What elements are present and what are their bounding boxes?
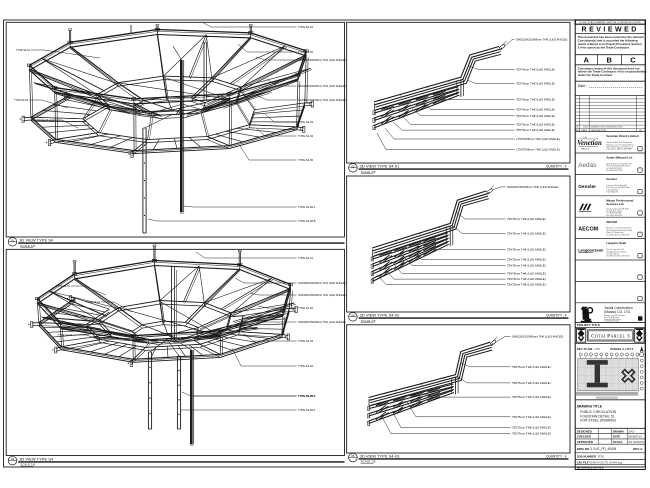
svg-text:CAD FILE: CAD FILE (577, 460, 589, 464)
svg-text:DATE: DATE (613, 435, 621, 439)
svg-text:Aedas (Macau) Ltd.: Aedas (Macau) Ltd. (606, 156, 633, 160)
svg-text:QUANTITY : 4: QUANTITY : 4 (546, 454, 567, 458)
svg-text:75X75mm THK (L&O ANGLE): 75X75mm THK (L&O ANGLE) (507, 264, 546, 268)
svg-text:DESIGNED: DESIGNED (577, 429, 592, 433)
svg-text:TYPE S4-02: TYPE S4-02 (14, 99, 29, 102)
svg-text:Services Ltd.: Services Ltd. (606, 202, 624, 206)
svg-text:Rooms 805-806, Macau: Rooms 805-806, Macau (604, 319, 621, 321)
svg-text:75X75mm THK (L&O ANGLE): 75X75mm THK (L&O ANGLE) (516, 123, 555, 127)
svg-text:TYPE S4-03: TYPE S4-03 (58, 334, 73, 337)
svg-text:SHS150X150X8mm THK (L&O ANGLE): SHS150X150X8mm THK (L&O ANGLE) (298, 281, 346, 285)
svg-text:under the Trade Contract.: under the Trade Contract. (578, 73, 613, 77)
svg-text:04: 04 (351, 313, 355, 317)
svg-text:ISSUED FOR CONSTRUCTION: ISSUED FOR CONSTRUCTION (591, 127, 623, 129)
svg-text:-: - (599, 435, 600, 439)
svg-text:TYPE S4-05 B: TYPE S4-05 B (298, 394, 316, 398)
svg-text:75X75mm THK (L&O ANGLE): 75X75mm THK (L&O ANGLE) (512, 426, 551, 430)
svg-text:75X75mm THK (L&O ANGLE): 75X75mm THK (L&O ANGLE) (516, 67, 555, 71)
svg-text:DO NOT SCALE DRAWING. VERIFY A: DO NOT SCALE DRAWING. VERIFY ALL DIMENSI… (579, 21, 641, 24)
svg-text:75X75mm THK (L&O ANGLE): 75X75mm THK (L&O ANGLE) (507, 257, 546, 261)
svg-text:75X75mm THK (L&O ANGLE): 75X75mm THK (L&O ANGLE) (507, 282, 546, 286)
svg-text:L75X75X6mm THK (L&O ANGLE): L75X75X6mm THK (L&O ANGLE) (516, 137, 560, 141)
svg-text:3D VIEW TYPE S4-03: 3D VIEW TYPE S4-03 (360, 453, 400, 458)
svg-text:TYPE S4-03: TYPE S4-03 (34, 119, 49, 122)
svg-text:TYPE S4-02: TYPE S4-02 (298, 306, 313, 310)
svg-text:REVIEWED: REVIEWED (582, 27, 639, 34)
svg-text:TYPE S4-01: TYPE S4-01 (298, 256, 313, 260)
svg-text:75X75mm THK (L&O ANGLE): 75X75mm THK (L&O ANGLE) (512, 395, 551, 399)
svg-text:SCALE 1/8: SCALE 1/8 (20, 463, 35, 467)
svg-text:FOR STEEL DRAWING: FOR STEEL DRAWING (580, 419, 616, 423)
svg-text:TYPE S4-02: TYPE S4-02 (86, 301, 101, 304)
svg-text:3D VIEW TYPE S4-01: 3D VIEW TYPE S4-01 (360, 164, 400, 169)
svg-text:JOB NUMBER: JOB NUMBER (577, 454, 597, 458)
svg-text:SHS150X150X8mm THK (L&O ANGLE): SHS150X150X8mm THK (L&O ANGLE) (298, 84, 346, 88)
svg-text:02: 02 (11, 457, 15, 461)
svg-text:SHS150X150X8mm THK (L&O ANGLE): SHS150X150X8mm THK (L&O ANGLE) (298, 98, 346, 102)
svg-text:C: C (630, 56, 636, 65)
svg-text:01: 01 (11, 238, 15, 242)
svg-text:SCALE 1/8: SCALE 1/8 (361, 460, 376, 464)
svg-text:75X75mm THK (L&O ANGLE): 75X75mm THK (L&O ANGLE) (512, 365, 551, 369)
svg-text:04/SEP/15: 04/SEP/15 (628, 435, 642, 439)
svg-text:Fax: (853) 2871 5092: Fax: (853) 2871 5092 (606, 170, 622, 172)
svg-text:TYPE S4-01: TYPE S4-01 (16, 49, 31, 52)
svg-text:75X75mm THK (L&O ANGLE): 75X75mm THK (L&O ANGLE) (516, 98, 555, 102)
svg-text:F 415.836.4599: F 415.836.4599 (606, 192, 618, 194)
svg-text:3728: 3728 (597, 454, 604, 458)
svg-text:REV A: REV A (633, 447, 643, 451)
svg-text:3D VIEW TYPE S4: 3D VIEW TYPE S4 (19, 238, 54, 243)
svg-text:Venetian Orient Limited: Venetian Orient Limited (606, 134, 639, 138)
svg-text:DRAWING TITLE: DRAWING TITLE (577, 405, 602, 409)
svg-text:75X75mm THK (L&O ANGLE): 75X75mm THK (L&O ANGLE) (516, 108, 555, 112)
svg-text:1 : 1750: 1 : 1750 (591, 348, 600, 351)
svg-text:3D VIEW TYPE S4-02: 3D VIEW TYPE S4-02 (360, 313, 400, 318)
svg-text:TYPE S4-05 A: TYPE S4-05 A (298, 205, 316, 209)
svg-text:SCALE 1/8: SCALE 1/8 (361, 170, 376, 174)
svg-text:75X75mm THK (L&O ANGLE): 75X75mm THK (L&O ANGLE) (512, 415, 551, 419)
svg-text:KEY PLAN: KEY PLAN (577, 347, 592, 351)
svg-text:DRAWN: DRAWN (613, 429, 624, 433)
svg-text:REFERENCE ON FILE: REFERENCE ON FILE (577, 465, 604, 469)
svg-text:75X75mm THK (L&O ANGLE): 75X75mm THK (L&O ANGLE) (507, 277, 546, 281)
svg-text:Avenida Comercial de Macau: Avenida Comercial de Macau (604, 314, 625, 317)
svg-text:Date :: Date : (578, 84, 588, 88)
svg-text:SHS150X150X8mm THK (L&O ANGLE): SHS150X150X8mm THK (L&O ANGLE) (507, 185, 558, 189)
svg-text:CHECKED: CHECKED (577, 435, 591, 439)
svg-text:PROJECT TITLE: PROJECT TITLE (577, 323, 600, 327)
svg-text:Aedas: Aedas (578, 162, 596, 169)
svg-text:TYPE S4-05: TYPE S4-05 (298, 158, 313, 162)
svg-text:TYPE S4-05 A: TYPE S4-05 A (298, 408, 316, 412)
svg-text:75X75mm THK (L&O ANGLE): 75X75mm THK (L&O ANGLE) (512, 381, 551, 385)
svg-text:QUANTITY : 4: QUANTITY : 4 (546, 314, 567, 318)
svg-text:TYPE S4-01: TYPE S4-01 (56, 285, 71, 288)
svg-text:B: B (607, 56, 613, 65)
svg-text:Tel: (853) 2870 0328: Tel: (853) 2870 0328 (604, 321, 619, 323)
svg-text:SHS150X150X8mm THK (L&O ANGLE): SHS150X150X8mm THK (L&O ANGLE) (298, 320, 346, 324)
svg-text:-: - (599, 440, 600, 444)
svg-text:PARCEL 3, LOT 2: PARCEL 3, LOT 2 (610, 347, 633, 351)
svg-text:10/09: 10/09 (583, 127, 589, 129)
svg-text:75X75mm THK (L&O ANGLE): 75X75mm THK (L&O ANGLE) (507, 272, 546, 276)
svg-text:AS SHOWN: AS SHOWN (628, 440, 644, 444)
svg-text:75X75mm THK (L&O ANGLE): 75X75mm THK (L&O ANGLE) (507, 231, 546, 235)
svg-text:Venetian: Venetian (577, 140, 602, 147)
svg-text:SHS150X150X8mm THK (L&O ANGLE): SHS150X150X8mm THK (L&O ANGLE) (516, 38, 567, 42)
svg-text:A: A (577, 126, 579, 129)
svg-text:LangdonSeah: LangdonSeah (578, 249, 604, 253)
svg-text:75X75mm THK (L&O ANGLE): 75X75mm THK (L&O ANGLE) (507, 247, 546, 251)
svg-text:Langdon Seah: Langdon Seah (606, 241, 626, 245)
svg-text:TYPE S4-03: TYPE S4-03 (298, 120, 313, 124)
svg-text:SHS150X150X8mm THK (L&O ANGLE): SHS150X150X8mm THK (L&O ANGLE) (298, 293, 346, 297)
svg-text:TYPE S4-04: TYPE S4-04 (298, 134, 313, 138)
svg-text:SCALE 1/8: SCALE 1/8 (361, 319, 376, 323)
svg-text:75X75mm THK (L&O ANGLE): 75X75mm THK (L&O ANGLE) (516, 82, 555, 86)
svg-text:QUANTITY : 4: QUANTITY : 4 (546, 165, 567, 169)
svg-text:3D VIEW TYPE S4: 3D VIEW TYPE S4 (19, 456, 54, 461)
svg-text:SCALE: SCALE (613, 440, 623, 444)
svg-text:DAO: DAO (628, 429, 635, 433)
svg-text:A: A (584, 56, 590, 65)
svg-text:40493-PCM_PD_40494.dwg: 40493-PCM_PD_40494.dwg (589, 460, 623, 464)
svg-text:APPROVED: APPROVED (577, 440, 593, 444)
svg-text:Tel: 2893 1551 Fax: 2891 5272: Tel: 2893 1551 Fax: 2891 5272 (606, 234, 629, 236)
svg-text:5.4 for action by the Trade Co: 5.4 for action by the Trade Contractor. (578, 45, 630, 49)
svg-text:75X75mm THK (L&O ANGLE): 75X75mm THK (L&O ANGLE) (516, 128, 555, 132)
svg-text:75X75mm THK (L&O ANGLE): 75X75mm THK (L&O ANGLE) (516, 114, 555, 118)
svg-text:75X75mm THK (L&O ANGLE): 75X75mm THK (L&O ANGLE) (507, 217, 546, 221)
svg-text:05: 05 (351, 454, 355, 458)
svg-text:DWG NO: DWG NO (577, 447, 590, 451)
svg-text:75X75mm THK (L&O ANGLE): 75X75mm THK (L&O ANGLE) (512, 432, 551, 436)
svg-text:Tel: 2833 1710 Fax: 2833 1532: Tel: 2833 1710 Fax: 2833 1532 (606, 256, 629, 258)
svg-text:TYPE S4-01: TYPE S4-01 (298, 25, 313, 29)
svg-text:03: 03 (351, 164, 355, 168)
svg-text:AECOM: AECOM (578, 227, 599, 233)
svg-text:AECOM: AECOM (606, 220, 617, 224)
svg-text:-: - (599, 429, 600, 433)
svg-text:TYPE S4-05 B: TYPE S4-05 B (298, 219, 316, 223)
svg-text:TYPE S4-02: TYPE S4-02 (298, 50, 313, 54)
svg-text:SHS150X150X8mm THK (L&O ANGLE): SHS150X150X8mm THK (L&O ANGLE) (298, 58, 346, 62)
svg-text:Gensler: Gensler (606, 177, 618, 181)
svg-text:SCALE 1/8: SCALE 1/8 (20, 244, 35, 248)
svg-text:3-YUE_PD_40494: 3-YUE_PD_40494 (590, 447, 616, 451)
svg-text:(Macau) CO. LTD.: (Macau) CO. LTD. (604, 310, 631, 314)
svg-text:M A C A O: M A C A O (581, 147, 590, 150)
svg-text:Fax: (853) 2878 3397: Fax: (853) 2878 3397 (606, 215, 622, 217)
svg-text:TYPE S4-03: TYPE S4-03 (298, 339, 313, 343)
svg-text:TYPE S4-04: TYPE S4-04 (298, 364, 313, 368)
svg-text:L75X75X6mm THK (L&O ANGLE): L75X75X6mm THK (L&O ANGLE) (516, 148, 560, 152)
svg-text:Gensler: Gensler (578, 184, 596, 190)
svg-text:Taipa, Macau SAR Tel: 2882 88: Taipa, Macau SAR Tel: 2882 8888 (606, 148, 632, 151)
svg-text:COTAI PARCEL 3: COTAI PARCEL 3 (591, 334, 630, 340)
svg-text:SHS150X150X8mm THK (L&O ANGLE): SHS150X150X8mm THK (L&O ANGLE) (512, 335, 563, 339)
